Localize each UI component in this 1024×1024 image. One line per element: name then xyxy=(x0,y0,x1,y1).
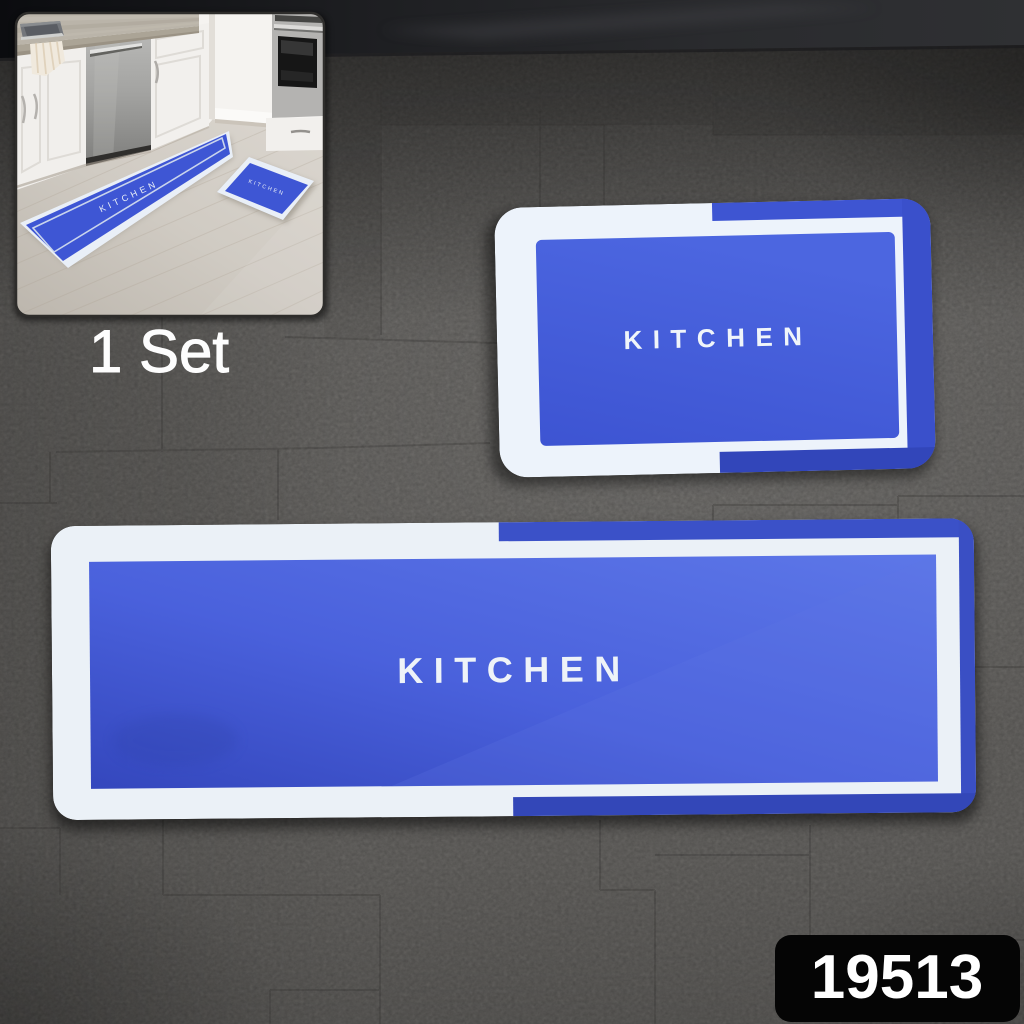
svg-text:19513: 19513 xyxy=(811,943,983,1012)
svg-text:KITCHEN: KITCHEN xyxy=(623,321,813,355)
svg-text:1 Set: 1 Set xyxy=(89,318,229,385)
svg-text:KITCHEN: KITCHEN xyxy=(397,648,631,691)
